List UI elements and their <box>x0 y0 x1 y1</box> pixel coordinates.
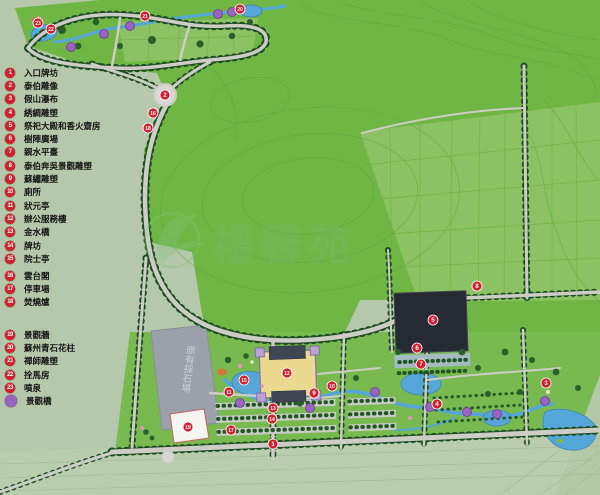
map-marker-2: 2 <box>160 90 170 100</box>
legend-item: 4綉綢雕塑 <box>5 106 101 119</box>
legend-item-label: 拴馬房 <box>24 368 50 380</box>
corner-tower <box>257 393 266 402</box>
map-marker-1: 1 <box>268 439 278 449</box>
svg-text:19: 19 <box>185 425 191 431</box>
legend-number-badge: 23 <box>5 383 15 393</box>
legend-item: 7親水平臺 <box>5 146 101 159</box>
map-marker-12: 12 <box>282 368 292 378</box>
legend-number-badge: 11 <box>5 201 15 211</box>
legend-number-badge: 16 <box>5 271 15 281</box>
bridge-marker <box>126 22 135 31</box>
legend-item: 3假山瀑布 <box>5 93 101 106</box>
legend-item-label: 停車場 <box>24 283 50 295</box>
bridge-marker <box>463 408 472 417</box>
ceremonial-hall-block <box>392 291 471 374</box>
svg-text:21: 21 <box>142 14 148 20</box>
legend-item-label: 金水橋 <box>24 226 50 238</box>
legend-item-label: 綉綢雕塑 <box>24 106 58 118</box>
legend-number-badge: 7 <box>5 147 15 157</box>
legend-number-badge: 9 <box>5 174 15 184</box>
map-marker-11: 11 <box>224 387 234 397</box>
legend-number-badge: 4 <box>5 108 15 118</box>
map-marker-9: 9 <box>309 388 319 398</box>
legend-item: 8泰伯奔吳景觀雕塑 <box>5 159 101 172</box>
legend-item-label: 泰伯奔吳景觀雕塑 <box>24 160 92 172</box>
legend-item-label: 蘇繡雕塑 <box>24 173 58 185</box>
legend-number-badge: 13 <box>5 227 15 237</box>
map-marker-4: 4 <box>432 399 442 409</box>
legend-item: 17停車場 <box>5 282 50 295</box>
legend-item-label: 入口牌坊 <box>24 67 58 79</box>
svg-text:15: 15 <box>241 378 247 384</box>
legend-item-label: 禪師雕塑 <box>24 355 58 367</box>
map-marker-20: 20 <box>235 4 245 14</box>
legend-item: 18焚燒爐 <box>5 296 50 309</box>
legend-item: 14牌坊 <box>5 239 101 252</box>
legend-item: 16雲台閣 <box>5 269 50 282</box>
park-map-plan: 原有採石場 <box>0 0 600 495</box>
legend-item-label: 院士亭 <box>24 253 50 265</box>
legend-item-label: 狀元亭 <box>24 199 50 211</box>
legend-number-badge: 19 <box>5 330 15 340</box>
map-marker-21: 21 <box>140 11 150 21</box>
legend-item: 19景觀牆 <box>5 328 75 341</box>
legend-item-label: 樹陣廣場 <box>24 133 58 145</box>
legend-item: 景觀橋 <box>5 394 52 407</box>
legend-number-badge: 3 <box>5 94 15 104</box>
legend-item-label: 假山瀑布 <box>24 93 58 105</box>
bridge-marker <box>67 43 76 52</box>
legend-group: 19景觀牆20蘇州青石花柱21禪師雕塑22拴馬房23噴泉 <box>5 328 75 394</box>
svg-text:13: 13 <box>270 406 276 412</box>
corner-tower <box>310 346 319 355</box>
svg-text:14: 14 <box>269 417 275 423</box>
map-marker-8: 8 <box>472 281 482 291</box>
legend-number-badge: 14 <box>5 241 15 251</box>
svg-text:12: 12 <box>284 371 290 377</box>
legend-number-badge: 2 <box>5 81 15 91</box>
legend-item-label: 廁所 <box>24 186 41 198</box>
legend-item-label: 景觀橋 <box>26 395 52 407</box>
legend-bridge-icon <box>5 395 17 407</box>
legend-number-badge: 18 <box>5 297 15 307</box>
legend-item: 15院士亭 <box>5 252 101 265</box>
map-marker-13: 13 <box>268 403 278 413</box>
watermark-text: 楊馨苑 <box>212 221 356 270</box>
legend-item: 6樹陣廣場 <box>5 132 101 145</box>
bridge-marker <box>236 399 245 408</box>
map-marker-22: 22 <box>46 24 56 34</box>
svg-text:10: 10 <box>329 384 335 390</box>
svg-text:18: 18 <box>145 126 151 132</box>
corner-tower <box>255 348 264 357</box>
legend-item: 2泰伯雕像 <box>5 79 101 92</box>
map-marker-3: 3 <box>541 378 551 388</box>
map-marker-15: 15 <box>239 375 249 385</box>
svg-text:11: 11 <box>226 390 232 396</box>
map-marker-19: 19 <box>183 422 193 432</box>
legend-item-label: 景觀牆 <box>24 329 50 341</box>
legend-item: 22拴馬房 <box>5 368 75 381</box>
main-hall-roof <box>269 345 305 359</box>
legend-number-badge: 12 <box>5 214 15 224</box>
bridge-marker <box>306 404 315 413</box>
bridge-marker <box>100 30 109 39</box>
legend-item-label: 牌坊 <box>24 239 41 251</box>
map-marker-23: 23 <box>33 18 43 28</box>
legend-group: 景觀橋 <box>5 394 52 407</box>
legend-item: 23噴泉 <box>5 381 75 394</box>
bridge-marker <box>541 397 550 406</box>
bridge-marker <box>371 388 380 397</box>
legend-item-label: 雲台閣 <box>24 270 50 282</box>
svg-text:16: 16 <box>150 111 156 117</box>
legend-item-label: 焚燒爐 <box>24 296 50 308</box>
legend-number-badge: 5 <box>5 121 15 131</box>
legend-item: 1入口牌坊 <box>5 66 101 79</box>
legend-number-badge: 1 <box>5 68 15 78</box>
svg-text:23: 23 <box>35 21 41 27</box>
bridge-marker <box>493 410 502 419</box>
legend-group: 16雲台閣17停車場18焚燒爐 <box>5 269 50 309</box>
legend-item: 21禪師雕塑 <box>5 355 75 368</box>
legend-number-badge: 17 <box>5 284 15 294</box>
legend-number-badge: 10 <box>5 187 15 197</box>
legend-item: 11狀元亭 <box>5 199 101 212</box>
legend-item-label: 泰伯雕像 <box>24 80 58 92</box>
map-marker-18: 18 <box>143 123 153 133</box>
legend-item-label: 祭祀大殿和香火齋房 <box>24 120 101 132</box>
gate-hall-roof <box>272 390 306 402</box>
map-marker-7: 7 <box>416 359 426 369</box>
svg-text:22: 22 <box>48 27 54 33</box>
legend-number-badge: 15 <box>5 254 15 264</box>
legend-number-badge: 8 <box>5 161 15 171</box>
map-marker-6: 6 <box>412 343 422 353</box>
map-marker-16: 16 <box>148 108 158 118</box>
pond-plaza <box>401 373 441 395</box>
rockery <box>217 369 227 376</box>
legend-item: 9蘇繡雕塑 <box>5 172 101 185</box>
legend-item: 10廁所 <box>5 186 101 199</box>
bridge-marker <box>214 10 223 19</box>
legend-item-label: 親水平臺 <box>24 146 58 158</box>
legend-number-badge: 20 <box>5 343 15 353</box>
legend-group: 1入口牌坊2泰伯雕像3假山瀑布4綉綢雕塑5祭祀大殿和香火齋房6樹陣廣場7親水平臺… <box>5 66 101 265</box>
legend-item-label: 噴泉 <box>24 382 41 394</box>
map-marker-10: 10 <box>327 381 337 391</box>
map-marker-5: 5 <box>428 315 438 325</box>
legend-item: 20蘇州青石花柱 <box>5 341 75 354</box>
legend-item-label: 辦公服務樓 <box>24 213 67 225</box>
legend-item-label: 蘇州青石花柱 <box>24 342 75 354</box>
legend-number-badge: 6 <box>5 134 15 144</box>
legend-item: 13金水橋 <box>5 226 101 239</box>
small-roundabout <box>162 451 174 463</box>
map-marker-14: 14 <box>267 414 277 424</box>
svg-text:20: 20 <box>237 7 243 13</box>
map-marker-17: 17 <box>226 425 236 435</box>
legend-number-badge: 21 <box>5 356 15 366</box>
svg-text:17: 17 <box>228 428 234 434</box>
legend-item: 5祭祀大殿和香火齋房 <box>5 119 101 132</box>
legend-number-badge: 22 <box>5 370 15 380</box>
legend-item: 12辦公服務樓 <box>5 212 101 225</box>
